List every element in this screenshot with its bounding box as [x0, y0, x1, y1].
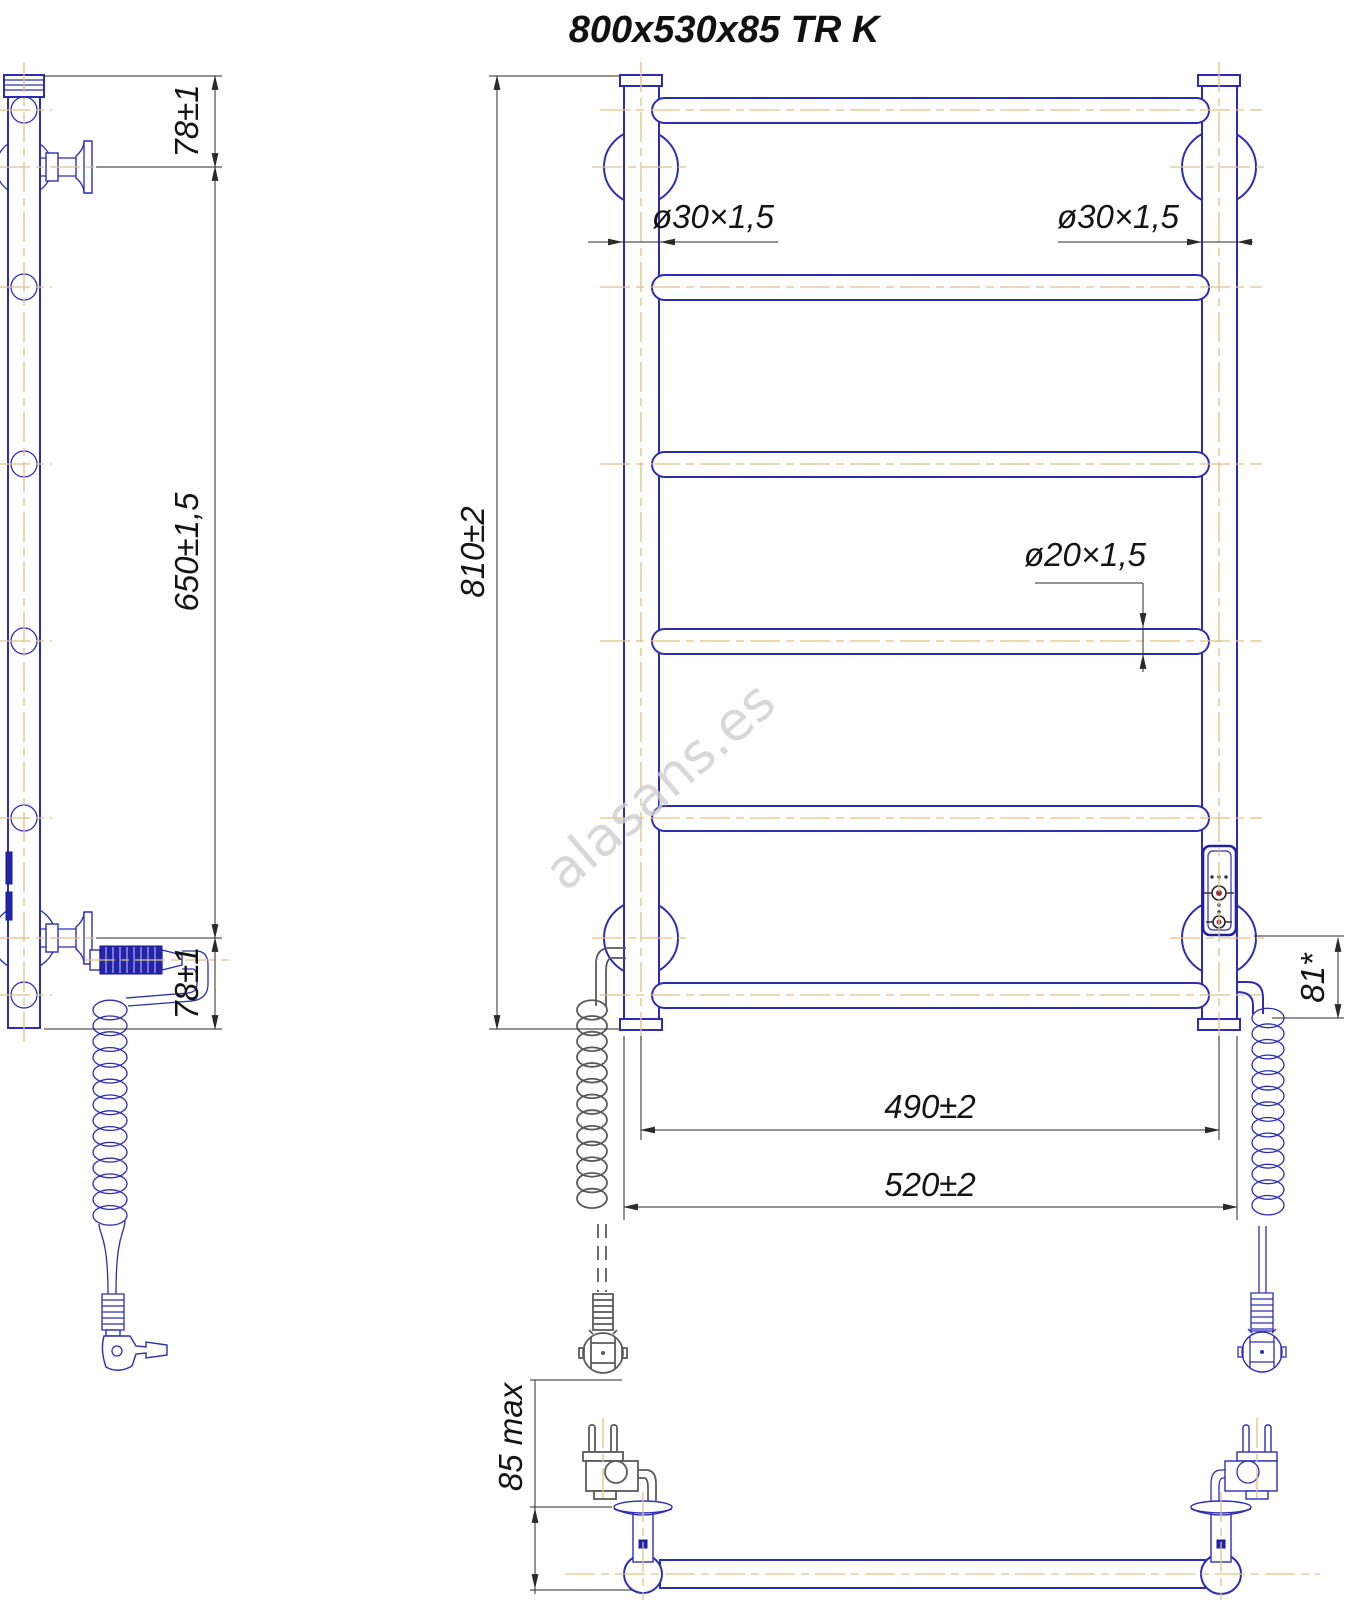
bottom-left-plug	[583, 1425, 638, 1499]
left-plug-elbow	[636, 1470, 656, 1502]
dim-tube-right-diameter: ø30×1,5	[1057, 198, 1180, 235]
led-indicator	[1224, 875, 1227, 878]
left-strain-relief	[593, 1294, 613, 1330]
side-detail-bar	[6, 892, 12, 920]
side-plug-neck	[106, 1330, 120, 1336]
dim-front-height: 810±2	[454, 506, 491, 598]
technical-drawing-canvas: 78±1 650±1,5 78±1 810±2 ø30×1,5 ø30×1,5 …	[0, 0, 1346, 1600]
dim-side-top-offset: 78±1	[168, 84, 205, 157]
side-view	[0, 75, 208, 1370]
dim-bracket-centers-width: 490±2	[884, 1088, 976, 1125]
right-power-cord	[1237, 982, 1286, 1372]
dim-side-bracket-span: 650±1,5	[168, 492, 205, 612]
drawing-sheet: 78±1 650±1,5 78±1 810±2 ø30×1,5 ø30×1,5 …	[0, 0, 1346, 1600]
left-plug-face	[579, 1330, 627, 1373]
right-coiled-cable	[1252, 1008, 1284, 1215]
side-coiled-cable	[93, 1000, 127, 1225]
led-indicator	[1210, 875, 1213, 878]
dim-rung-diameter: ø20×1,5	[1024, 536, 1147, 573]
dimensions: 78±1 650±1,5 78±1 810±2 ø30×1,5 ø30×1,5 …	[44, 76, 1344, 1594]
dim-overall-width: 520±2	[884, 1166, 976, 1203]
dim-side-bottom-offset: 78±1	[168, 946, 205, 1019]
left-coiled-cable	[577, 1000, 607, 1208]
left-cable-break	[598, 1224, 606, 1292]
dim-tube-left-diameter: ø30×1,5	[652, 198, 775, 235]
side-strain-relief	[102, 1294, 124, 1330]
side-cable	[99, 1220, 125, 1294]
left-power-cord	[577, 948, 627, 1373]
dim-depth-max: 85 max	[492, 1381, 529, 1491]
bottom-right-assembly	[1191, 1425, 1277, 1562]
dim-cable-offset: 81*	[1294, 952, 1331, 1003]
side-detail-bar	[6, 852, 12, 884]
side-plug	[102, 1336, 167, 1370]
right-strain-relief	[1251, 1293, 1273, 1331]
drawing-title: 800x530x85 TR K	[569, 9, 882, 51]
bottom-right-plug	[1225, 1425, 1277, 1499]
bottom-left-assembly	[583, 1425, 672, 1562]
right-plug-face	[1238, 1329, 1286, 1372]
bottom-view	[583, 1425, 1277, 1594]
